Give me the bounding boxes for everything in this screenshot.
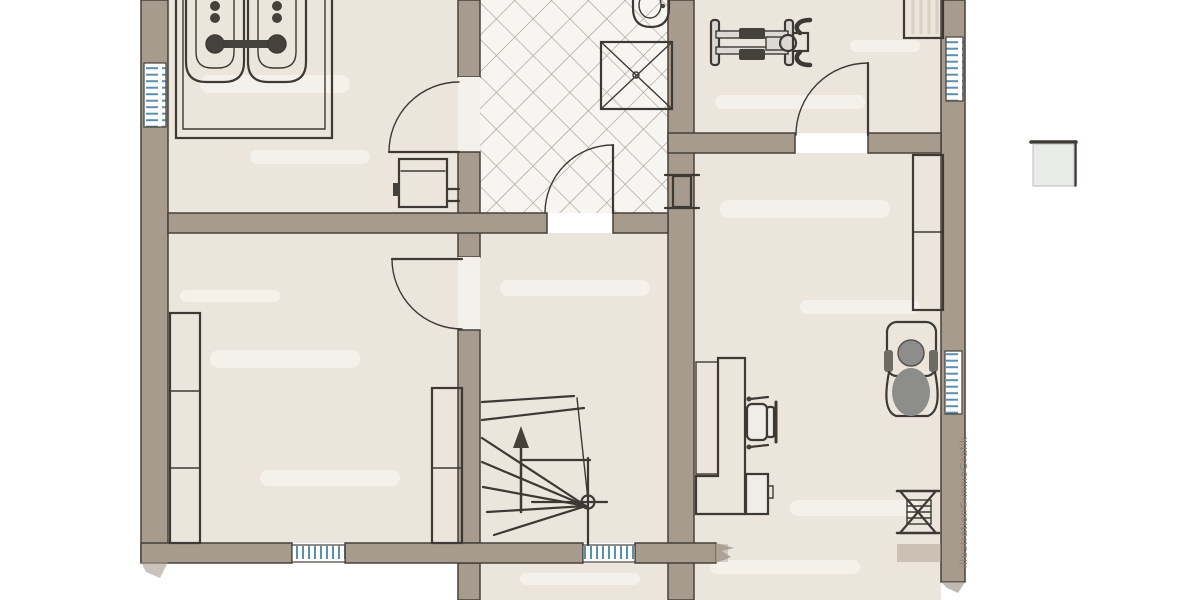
armrest (884, 350, 893, 372)
room-floor-storage (168, 233, 458, 543)
room-floor-hallway (480, 0, 668, 213)
window-east-office (945, 351, 962, 414)
wall-segment-south (141, 543, 292, 563)
wall-segment-central-extension (458, 563, 480, 600)
wall-faded-stub (694, 544, 728, 562)
room-floor-heating (168, 0, 458, 213)
wall-segment-fitness (868, 133, 941, 153)
wall-segment-divider (613, 213, 668, 233)
room-floor-stairs (480, 233, 668, 543)
floor-plan-canvas: illustration©immoGrafik (0, 0, 1200, 600)
armrest (929, 350, 938, 372)
legend-swatch (1031, 142, 1076, 186)
door-opening (458, 77, 480, 152)
wall-segment-central (458, 0, 480, 77)
window-south-stairs (583, 545, 635, 562)
boiler-handle (393, 183, 400, 196)
wall-ragged-end (941, 582, 965, 593)
window-west (144, 63, 166, 127)
floor-plan-page: illustration©immoGrafik (0, 0, 1200, 600)
wall-faded-stub (897, 544, 941, 562)
desk-cabinet (746, 474, 773, 514)
wall-ragged-end (141, 562, 168, 578)
window-south-storage (292, 545, 345, 562)
wall-segment-divider (168, 213, 547, 233)
person-figure (892, 340, 930, 416)
door-opening (458, 257, 480, 330)
wall-segment-south (345, 543, 583, 563)
wall-segment-fitness (668, 133, 795, 153)
window-east-fitness (946, 37, 963, 101)
wall-segment-central (458, 152, 480, 257)
watermark-text: illustration©immoGrafik (958, 436, 970, 568)
